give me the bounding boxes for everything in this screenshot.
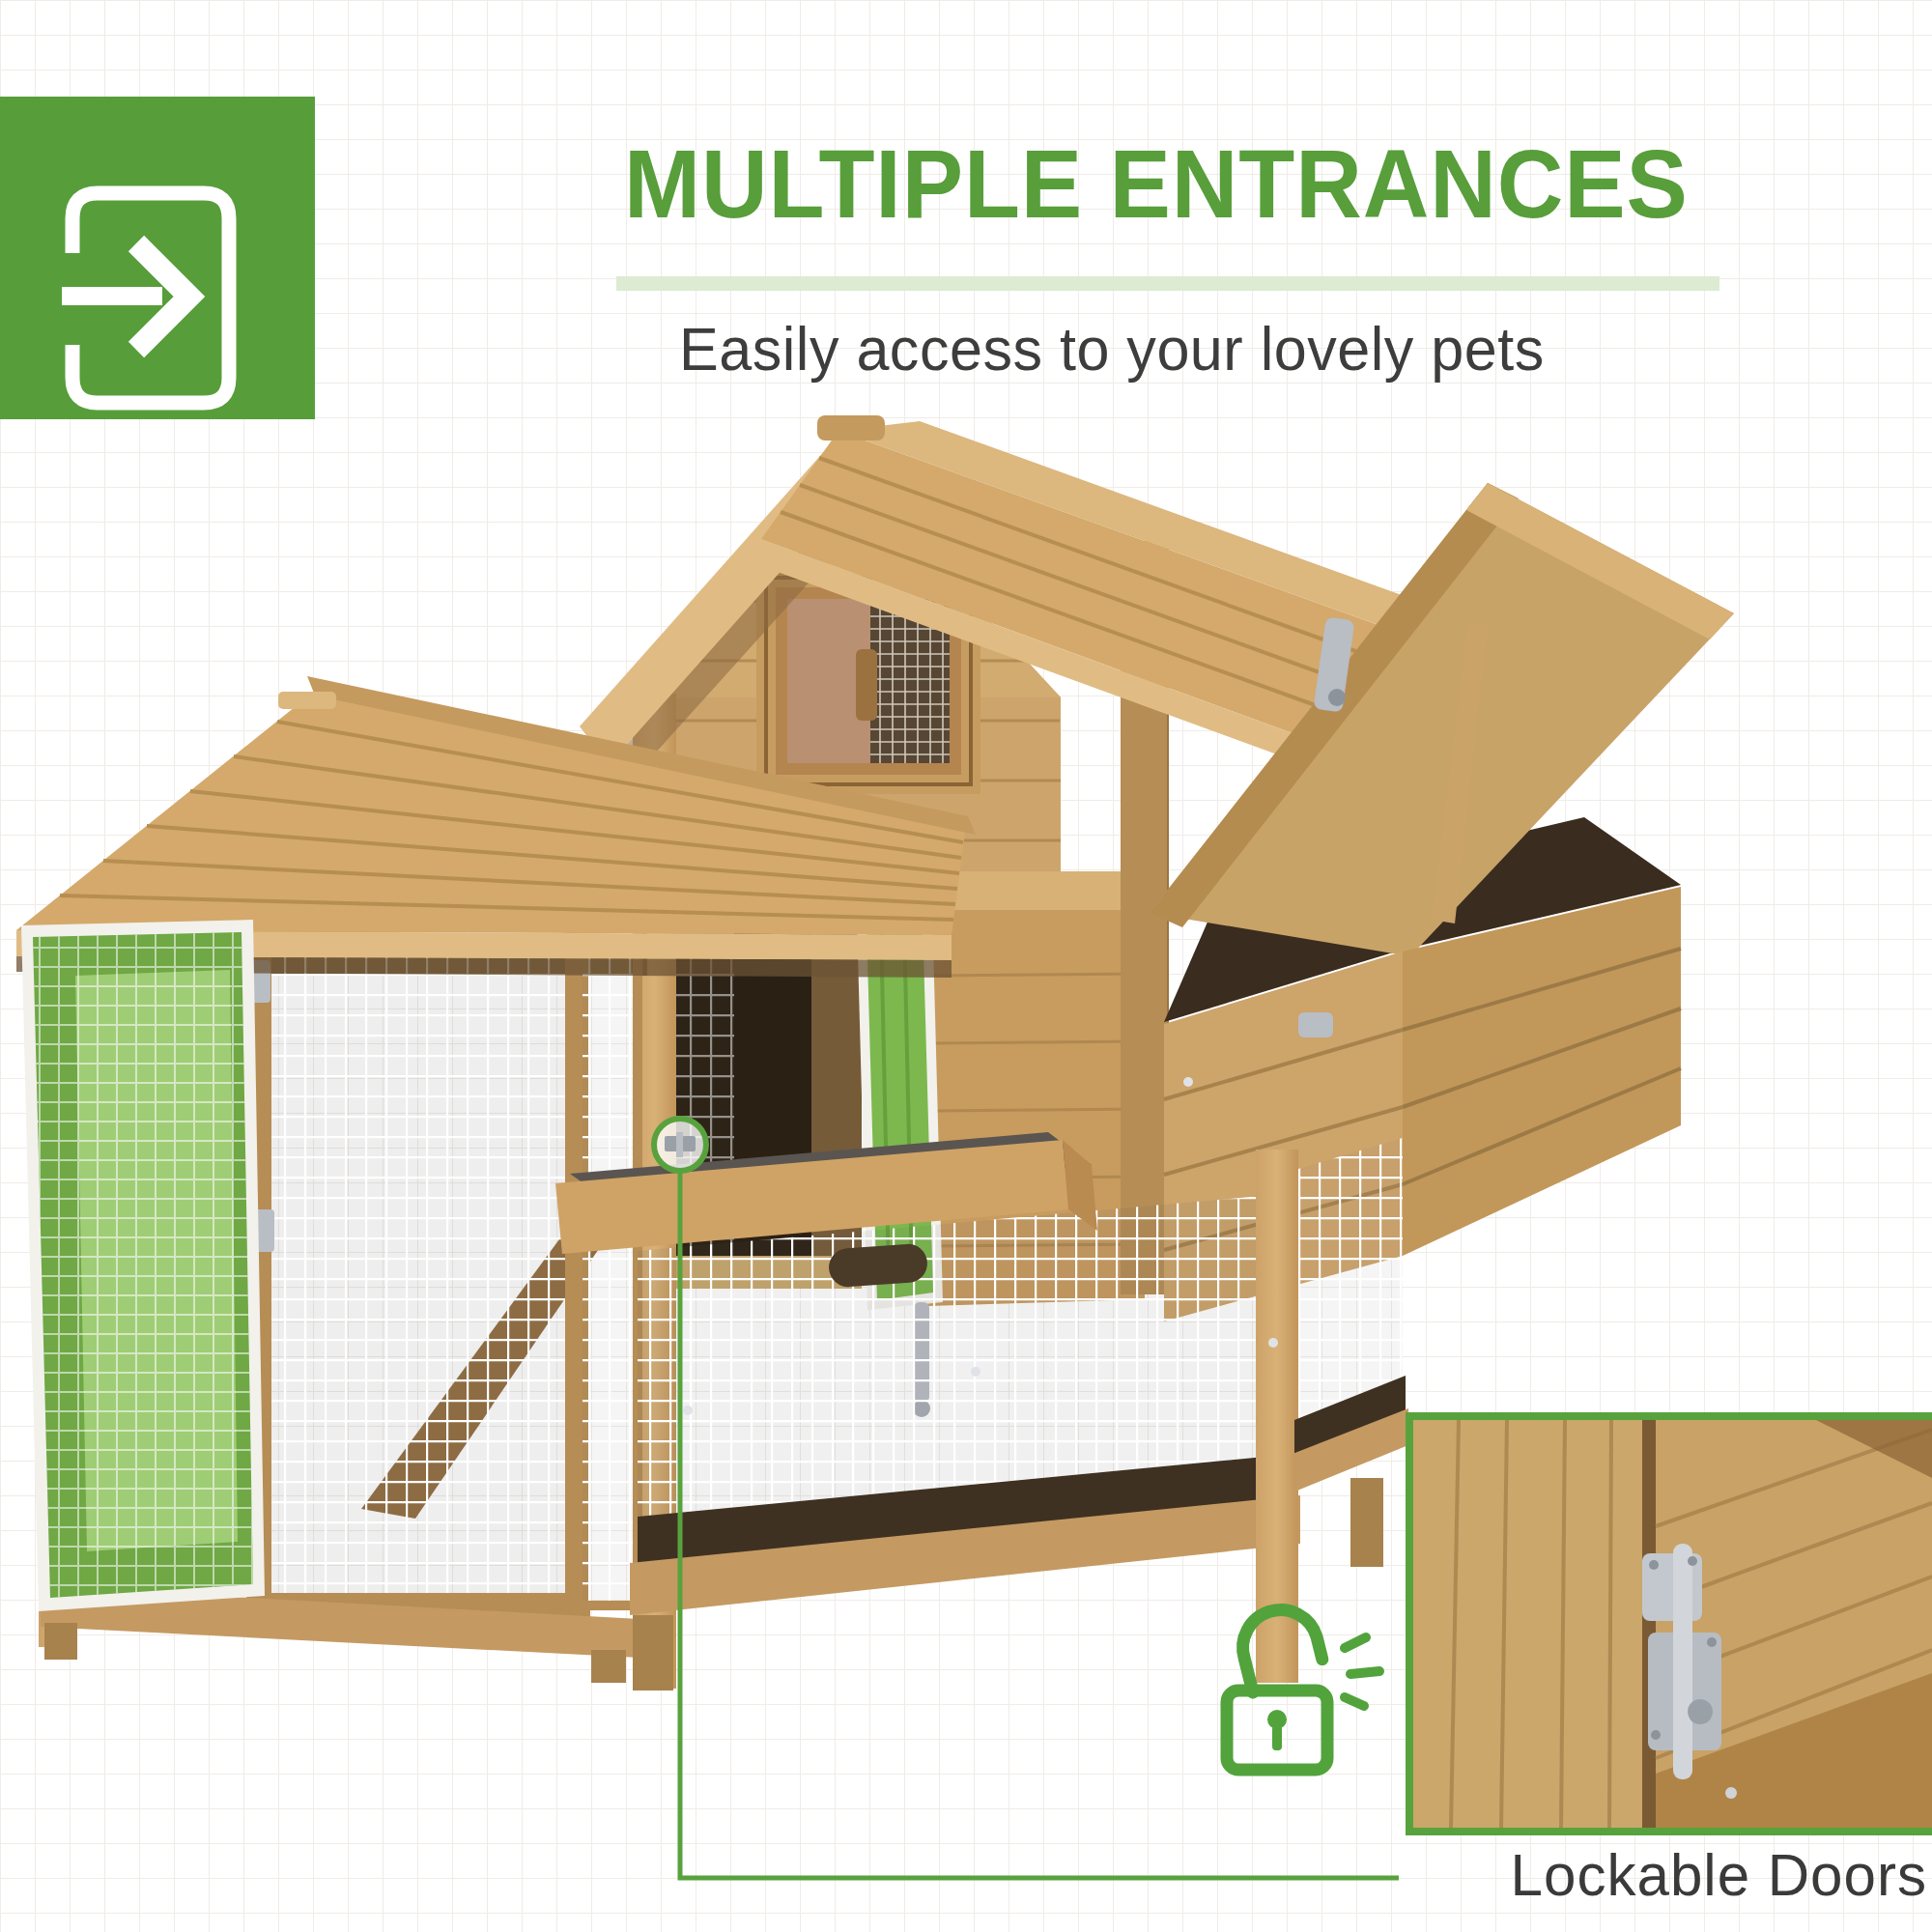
right-front-leg	[1256, 1150, 1298, 1683]
run-mesh-door	[249, 920, 641, 1605]
latch-circle-marker	[654, 1119, 706, 1171]
window-knob	[856, 649, 877, 721]
nest-box-latch	[1298, 1012, 1333, 1037]
coop-illustration	[0, 0, 1932, 1932]
green-mesh-door-highlighted	[21, 920, 265, 1611]
inset-photo-latch-closeup	[1406, 1412, 1932, 1835]
caption-lockable-doors: Lockable Doors	[1398, 1845, 1927, 1905]
roof-ridge-cap	[817, 415, 885, 440]
tray-handle-slot	[828, 1242, 929, 1288]
click-lines	[1345, 1637, 1379, 1706]
open-padlock-icon	[1227, 1602, 1379, 1770]
